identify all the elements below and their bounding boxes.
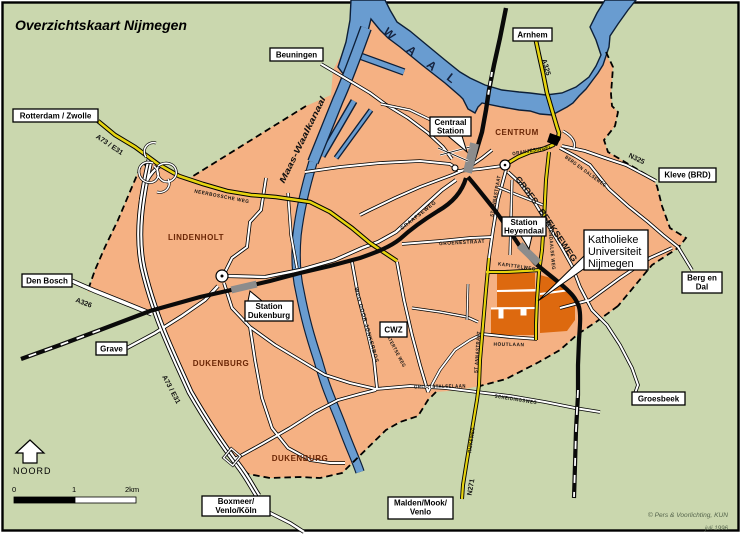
svg-text:Berg en: Berg en (687, 274, 717, 283)
svg-text:Boxmeer/: Boxmeer/ (218, 497, 255, 506)
svg-text:0: 0 (12, 485, 16, 494)
svg-text:Overzichtskaart Nijmegen: Overzichtskaart Nijmegen (15, 17, 187, 33)
svg-text:Groesbeek: Groesbeek (638, 395, 680, 404)
svg-text:Dukenburg: Dukenburg (248, 311, 290, 320)
svg-text:Universiteit: Universiteit (588, 246, 641, 258)
svg-text:Katholieke: Katholieke (588, 234, 638, 246)
svg-text:DUKENBURG: DUKENBURG (272, 454, 329, 463)
svg-text:Venlo/Köln: Venlo/Köln (215, 506, 256, 515)
svg-text:NOORD: NOORD (13, 466, 52, 476)
svg-text:GROOTSTALSELAAN: GROOTSTALSELAAN (414, 384, 466, 391)
svg-text:Venlo: Venlo (410, 508, 431, 517)
svg-text:2km: 2km (125, 485, 139, 494)
svg-text:juli 1996: juli 1996 (704, 525, 729, 532)
svg-text:Malden/Mook/: Malden/Mook/ (394, 499, 448, 508)
svg-text:1: 1 (72, 485, 76, 494)
svg-text:Dal: Dal (696, 283, 708, 292)
svg-text:© Pers & Voorlichting, KUN: © Pers & Voorlichting, KUN (648, 511, 728, 519)
svg-text:Nijmegen: Nijmegen (588, 258, 634, 270)
svg-text:LINDENHOLT: LINDENHOLT (168, 233, 224, 242)
svg-text:Station: Station (255, 302, 282, 311)
svg-text:HOUTLAAN: HOUTLAAN (493, 342, 524, 349)
svg-text:DUKENBURG: DUKENBURG (193, 359, 250, 368)
svg-text:Beuningen: Beuningen (276, 51, 317, 60)
svg-text:Grave: Grave (100, 345, 123, 354)
svg-text:CENTRUM: CENTRUM (495, 128, 539, 137)
svg-text:Den Bosch: Den Bosch (26, 277, 68, 286)
svg-text:Kleve (BRD): Kleve (BRD) (664, 171, 711, 180)
svg-text:Station: Station (437, 127, 464, 136)
svg-text:Rotterdam / Zwolle: Rotterdam / Zwolle (20, 112, 92, 121)
svg-text:Arnhem: Arnhem (517, 31, 547, 40)
svg-text:Heyendaal: Heyendaal (504, 227, 544, 236)
svg-text:CWZ: CWZ (384, 326, 402, 335)
